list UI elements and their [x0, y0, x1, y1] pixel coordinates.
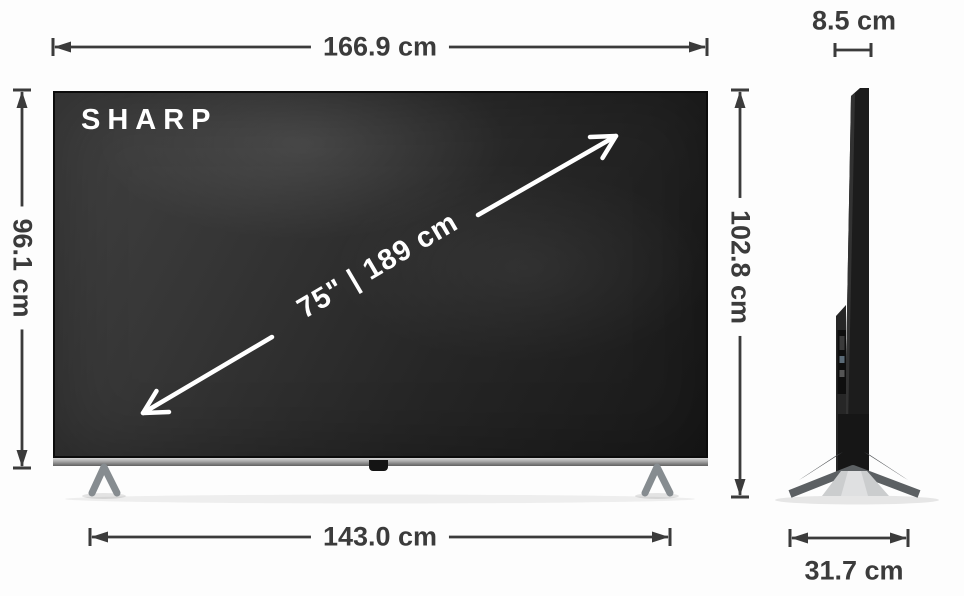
stand-width-label: 143.0 cm	[311, 521, 449, 554]
dimension-lines	[13, 38, 908, 547]
screen-height-label: 96.1 cm	[6, 206, 39, 329]
floor-shadows	[65, 493, 939, 505]
tv-front-feet	[92, 467, 670, 493]
tv-side-ports	[838, 330, 847, 394]
tv-dimensions-diagram: SHARP	[0, 0, 964, 596]
depth-label: 8.5 cm	[800, 5, 908, 38]
overall-height-label: 102.8 cm	[724, 198, 757, 336]
width-label: 166.9 cm	[311, 31, 449, 64]
diagram-linework	[0, 0, 964, 596]
stand-depth-dimension	[790, 529, 908, 547]
depth-dimension	[835, 43, 871, 57]
tv-side-view	[790, 88, 919, 496]
stand-depth-label: 31.7 cm	[792, 555, 915, 588]
